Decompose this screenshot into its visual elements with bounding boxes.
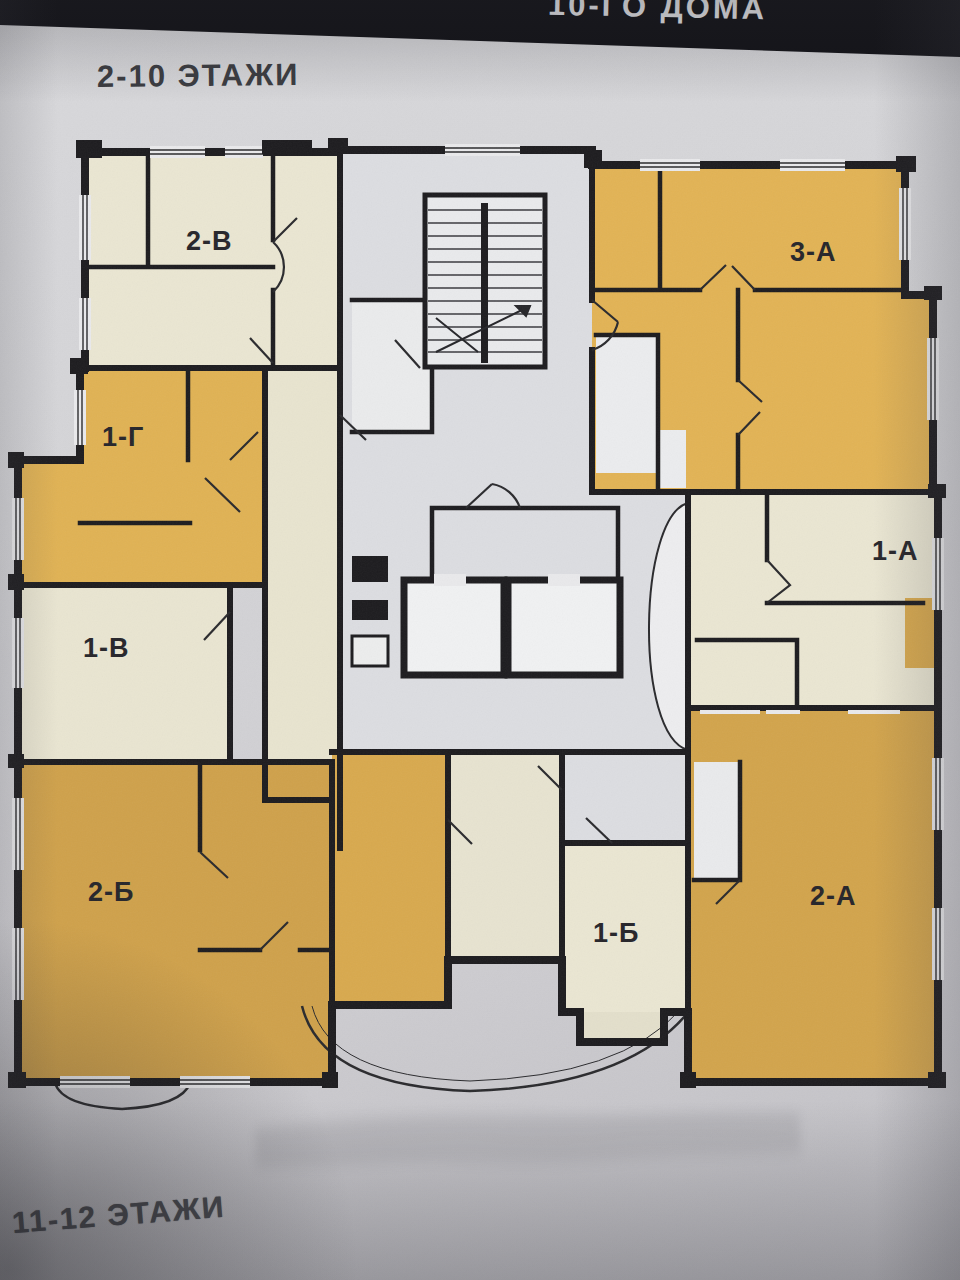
floor-range-label-top: 2-10 ЭТАЖИ: [97, 57, 300, 95]
floor-plan-drawing: 2-В 3-А 1-Г 1-А 1-В 2-Б 1-Б 2-А: [0, 0, 960, 1280]
header-band-title: 10-ГО ДОМА: [548, 0, 768, 27]
floor-plan-photo: 2-В 3-А 1-Г 1-А 1-В 2-Б 1-Б 2-А 10-ГО ДО…: [0, 0, 960, 1280]
